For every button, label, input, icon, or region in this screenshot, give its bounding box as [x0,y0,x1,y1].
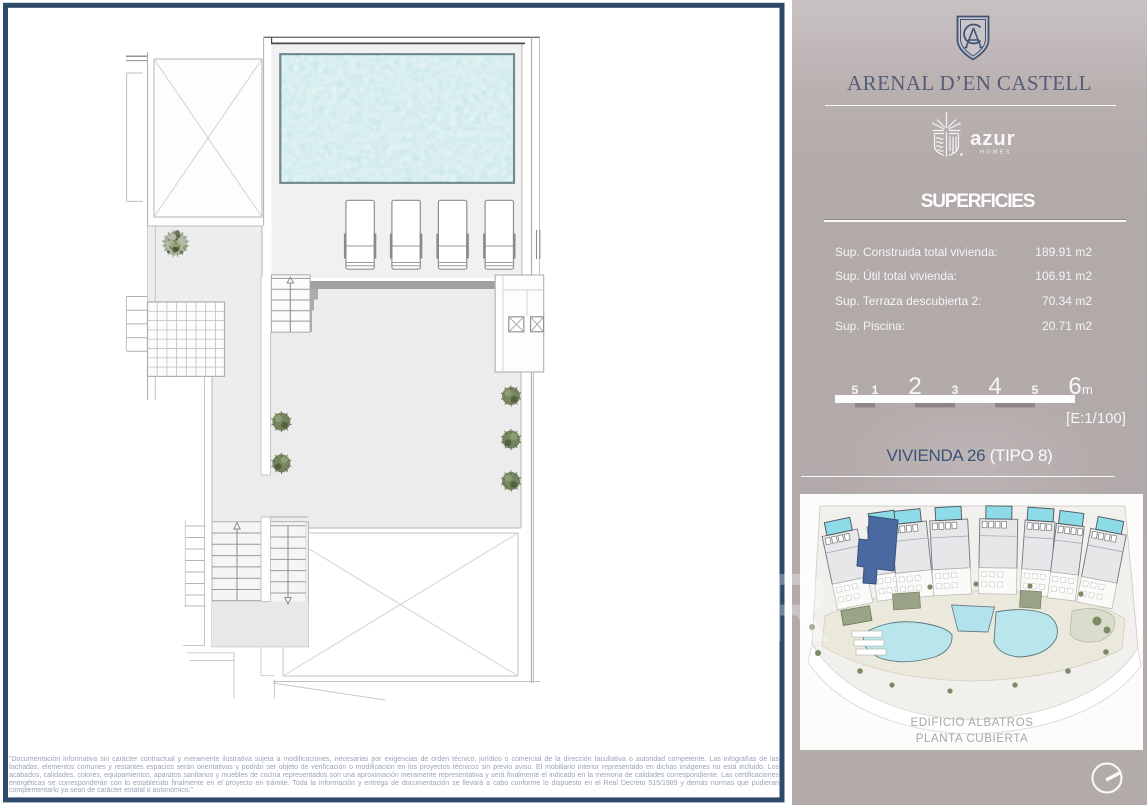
svg-text:3: 3 [952,383,959,397]
svg-text:5: 5 [852,383,859,397]
svg-text:1: 1 [872,383,879,397]
svg-text:5: 5 [1032,383,1039,397]
svg-text:HOMES: HOMES [980,150,1012,156]
svg-text:PLANTA CUBIERTA: PLANTA CUBIERTA [916,733,1029,745]
svg-text:azur: azur [970,127,1015,150]
svg-text:m: m [1082,382,1093,397]
svg-text:EDIFICIO ALBATROS: EDIFICIO ALBATROS [910,717,1033,729]
